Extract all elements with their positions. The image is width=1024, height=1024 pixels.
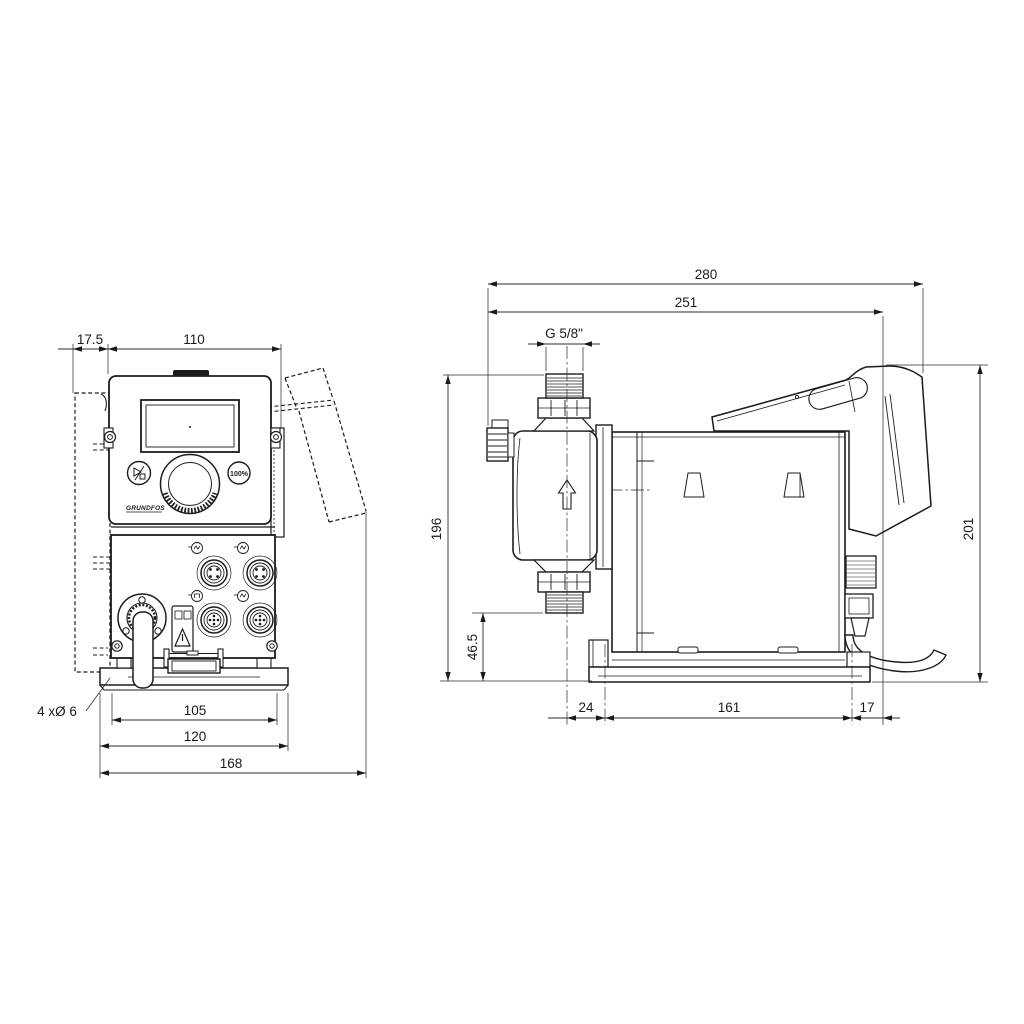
dim-plate-width: 120 [184, 729, 207, 744]
dim-overall-depth: 280 [695, 267, 718, 282]
dim-slot-spacing: 105 [184, 703, 207, 718]
side-view: 280 251 G 5/8" 196 46.5 [429, 267, 988, 725]
housing-vent-left [684, 473, 704, 497]
front-view: 100% GRUNDFOS [37, 332, 366, 778]
dim-front-hole-offset: 24 [578, 700, 594, 715]
vent-knob [487, 420, 514, 461]
connector-2 [243, 556, 277, 590]
dim-hole-spacing: 161 [718, 700, 741, 715]
dim-wall-offset: 17.5 [77, 332, 103, 347]
dim-overall-height: 201 [961, 518, 976, 541]
dim-overall-width: 168 [220, 756, 243, 771]
bottom-left-screw [112, 641, 122, 651]
brand-logo: GRUNDFOS [126, 505, 165, 512]
power-cable [133, 612, 153, 688]
boost-button: 100% [228, 462, 250, 484]
brand-logo-text: GRUNDFOS [126, 505, 165, 512]
connector-1 [197, 556, 231, 590]
dim-rear-hole-offset: 17 [859, 700, 874, 715]
motor-housing [588, 432, 845, 652]
pump-dimensional-drawing: 100% GRUNDFOS [0, 0, 1024, 1024]
power-connector-side [845, 594, 873, 636]
boost-button-label: 100% [230, 471, 249, 478]
bottom-right-screw [267, 641, 277, 651]
rear-cable-gland [846, 556, 876, 588]
dimensional-drawing-page: 100% GRUNDFOS [0, 0, 1024, 1024]
dim-connection-thread: G 5/8" [545, 326, 583, 341]
click-wheel [161, 455, 220, 514]
connector-3 [197, 603, 231, 637]
connector-4 [243, 603, 277, 637]
start-stop-button [128, 462, 151, 485]
dim-panel-width: 110 [183, 332, 205, 347]
display [141, 400, 239, 452]
housing-vent-right [784, 473, 804, 497]
head-body [513, 431, 597, 560]
suction-valve [534, 560, 594, 613]
dim-suction-valve-height: 46.5 [465, 634, 480, 660]
right-screw-boss [271, 428, 282, 448]
warning-label [172, 606, 193, 652]
hole-note: 4 xØ 6 [37, 704, 77, 719]
discharge-valve [534, 374, 594, 431]
head-flange [596, 425, 612, 569]
dim-depth-to-cable: 251 [675, 295, 698, 310]
dim-valve-top-height: 196 [429, 518, 444, 541]
hole-note-leader [86, 678, 110, 711]
